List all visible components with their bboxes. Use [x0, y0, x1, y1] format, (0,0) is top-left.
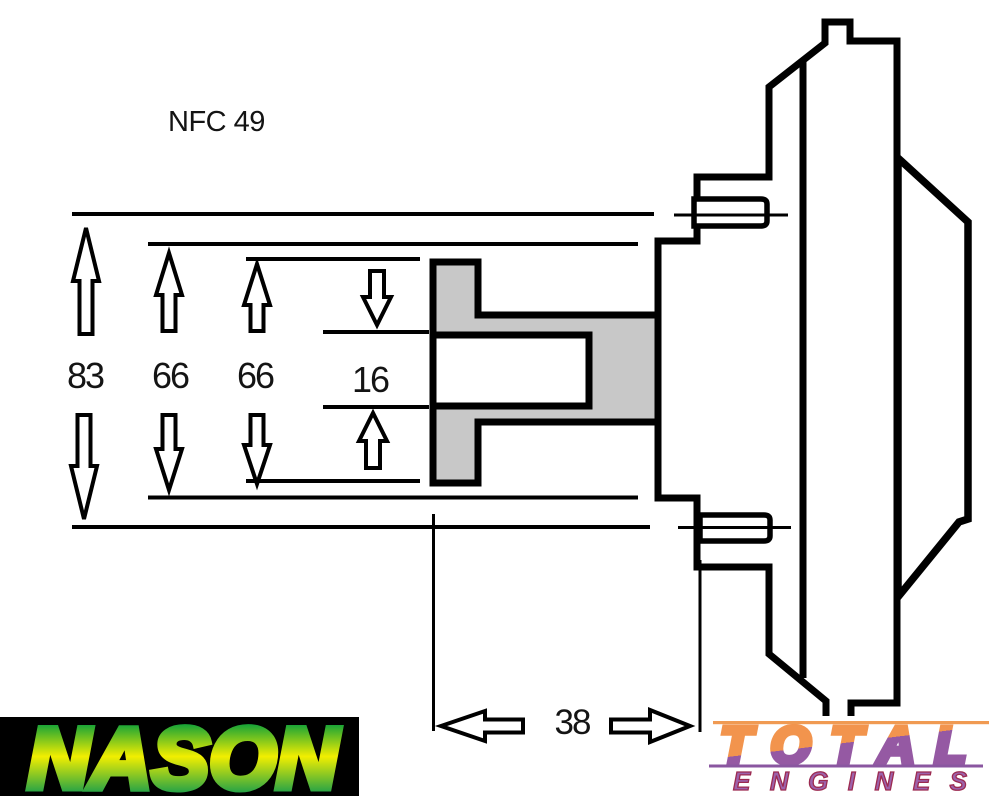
svg-text:NFC 49: NFC 49	[168, 106, 265, 138]
svg-text:16: 16	[352, 359, 389, 400]
svg-text:66: 66	[152, 355, 189, 396]
svg-text:ENGINES: ENGINES	[733, 766, 987, 796]
svg-text:NASON: NASON	[28, 711, 340, 796]
svg-text:83: 83	[67, 355, 104, 396]
svg-text:38: 38	[555, 703, 590, 742]
svg-text:66: 66	[237, 355, 274, 396]
